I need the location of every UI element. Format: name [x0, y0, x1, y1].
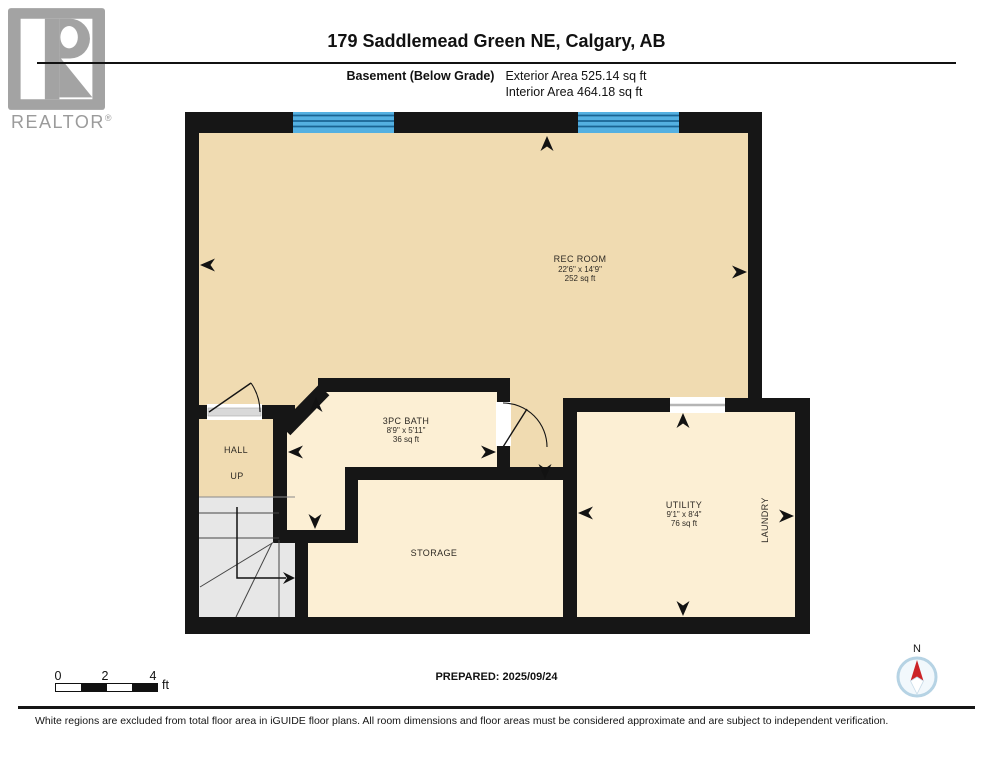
exterior-area: Exterior Area 525.14 sq ft	[505, 69, 646, 85]
scale-tick-2: 2	[99, 669, 111, 683]
disclaimer-text: White regions are excluded from total fl…	[35, 715, 965, 727]
rec-room-floor	[199, 133, 748, 412]
bath-dimensions: 8'9" x 5'11"	[387, 426, 426, 435]
compass-icon: N	[893, 641, 941, 701]
utility-label: UTILITY	[666, 500, 702, 510]
scale-unit-label: ft	[162, 678, 169, 692]
window-icon	[578, 112, 679, 133]
utility-area: 76 sq ft	[671, 519, 698, 528]
scale-bar-segment	[132, 684, 157, 691]
bath-area: 36 sq ft	[393, 435, 420, 444]
bath-door-opening	[496, 402, 511, 446]
header-divider	[37, 62, 956, 64]
bath-label: 3PC BATH	[383, 416, 430, 426]
storage-label: STORAGE	[411, 548, 458, 558]
rec-room-area: 252 sq ft	[565, 274, 596, 283]
floor-plan-page: { "logo": { "realtor_word": "REALTOR", "…	[0, 0, 993, 768]
stairs-up-label: UP	[230, 471, 243, 481]
rec-room-label: REC ROOM	[554, 254, 607, 264]
compass-north-label: N	[913, 643, 921, 655]
laundry-label: LAUNDRY	[760, 497, 770, 543]
scale-bar-segment	[81, 684, 106, 691]
floor-label: Basement (Below Grade)	[346, 69, 494, 84]
floor-summary: Basement (Below Grade) Exterior Area 525…	[0, 69, 993, 100]
interior-area: Interior Area 464.18 sq ft	[505, 85, 646, 101]
hall-door-slab	[208, 408, 261, 416]
scale-tick-0: 0	[52, 669, 64, 683]
footer-divider	[18, 706, 975, 709]
window-icon	[293, 112, 394, 133]
floor-plan: REC ROOM 22'6" x 14'9" 252 sq ft 3PC BAT…	[0, 0, 993, 768]
scale-tick-4: 4	[147, 669, 159, 683]
utility-dimensions: 9'1" x 8'4"	[667, 510, 702, 519]
room-fills	[199, 133, 795, 617]
scale-bar: 0 2 4 ft	[55, 669, 185, 699]
corridor-floor	[510, 392, 563, 467]
rec-room-dimensions: 22'6" x 14'9"	[558, 265, 602, 274]
scale-bar-track	[55, 683, 158, 692]
hall-label: HALL	[224, 445, 248, 455]
page-title: 179 Saddlemead Green NE, Calgary, AB	[0, 31, 993, 52]
